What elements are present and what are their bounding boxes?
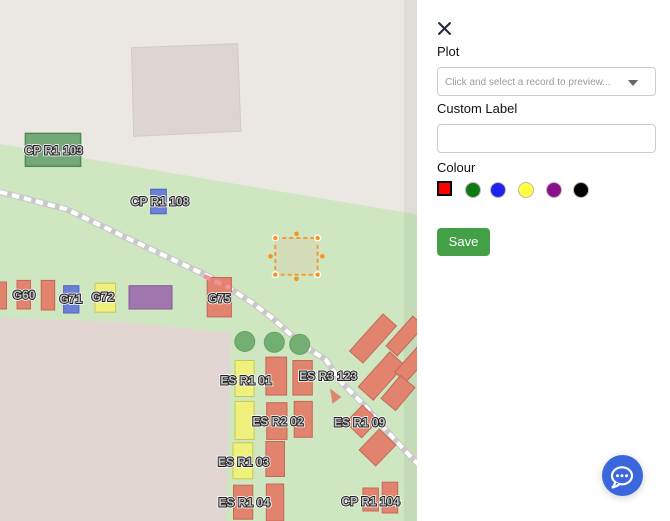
svg-text:G72: G72 — [92, 290, 115, 304]
svg-text:G71: G71 — [59, 292, 82, 306]
svg-text:ES R1 03: ES R1 03 — [218, 455, 270, 469]
svg-text:ES R1 04: ES R1 04 — [219, 496, 271, 510]
svg-text:ES R3 123: ES R3 123 — [299, 369, 357, 383]
svg-text:CP R1 104: CP R1 104 — [341, 494, 400, 508]
svg-text:ES R2 02: ES R2 02 — [252, 415, 304, 429]
svg-text:ES R1 09: ES R1 09 — [334, 415, 386, 429]
svg-text:CP R1 108: CP R1 108 — [131, 195, 190, 209]
svg-text:CP R1 103: CP R1 103 — [24, 144, 83, 158]
svg-text:G75: G75 — [208, 292, 231, 306]
svg-text:ES R1 01: ES R1 01 — [220, 374, 272, 388]
svg-text:G60: G60 — [13, 288, 36, 302]
